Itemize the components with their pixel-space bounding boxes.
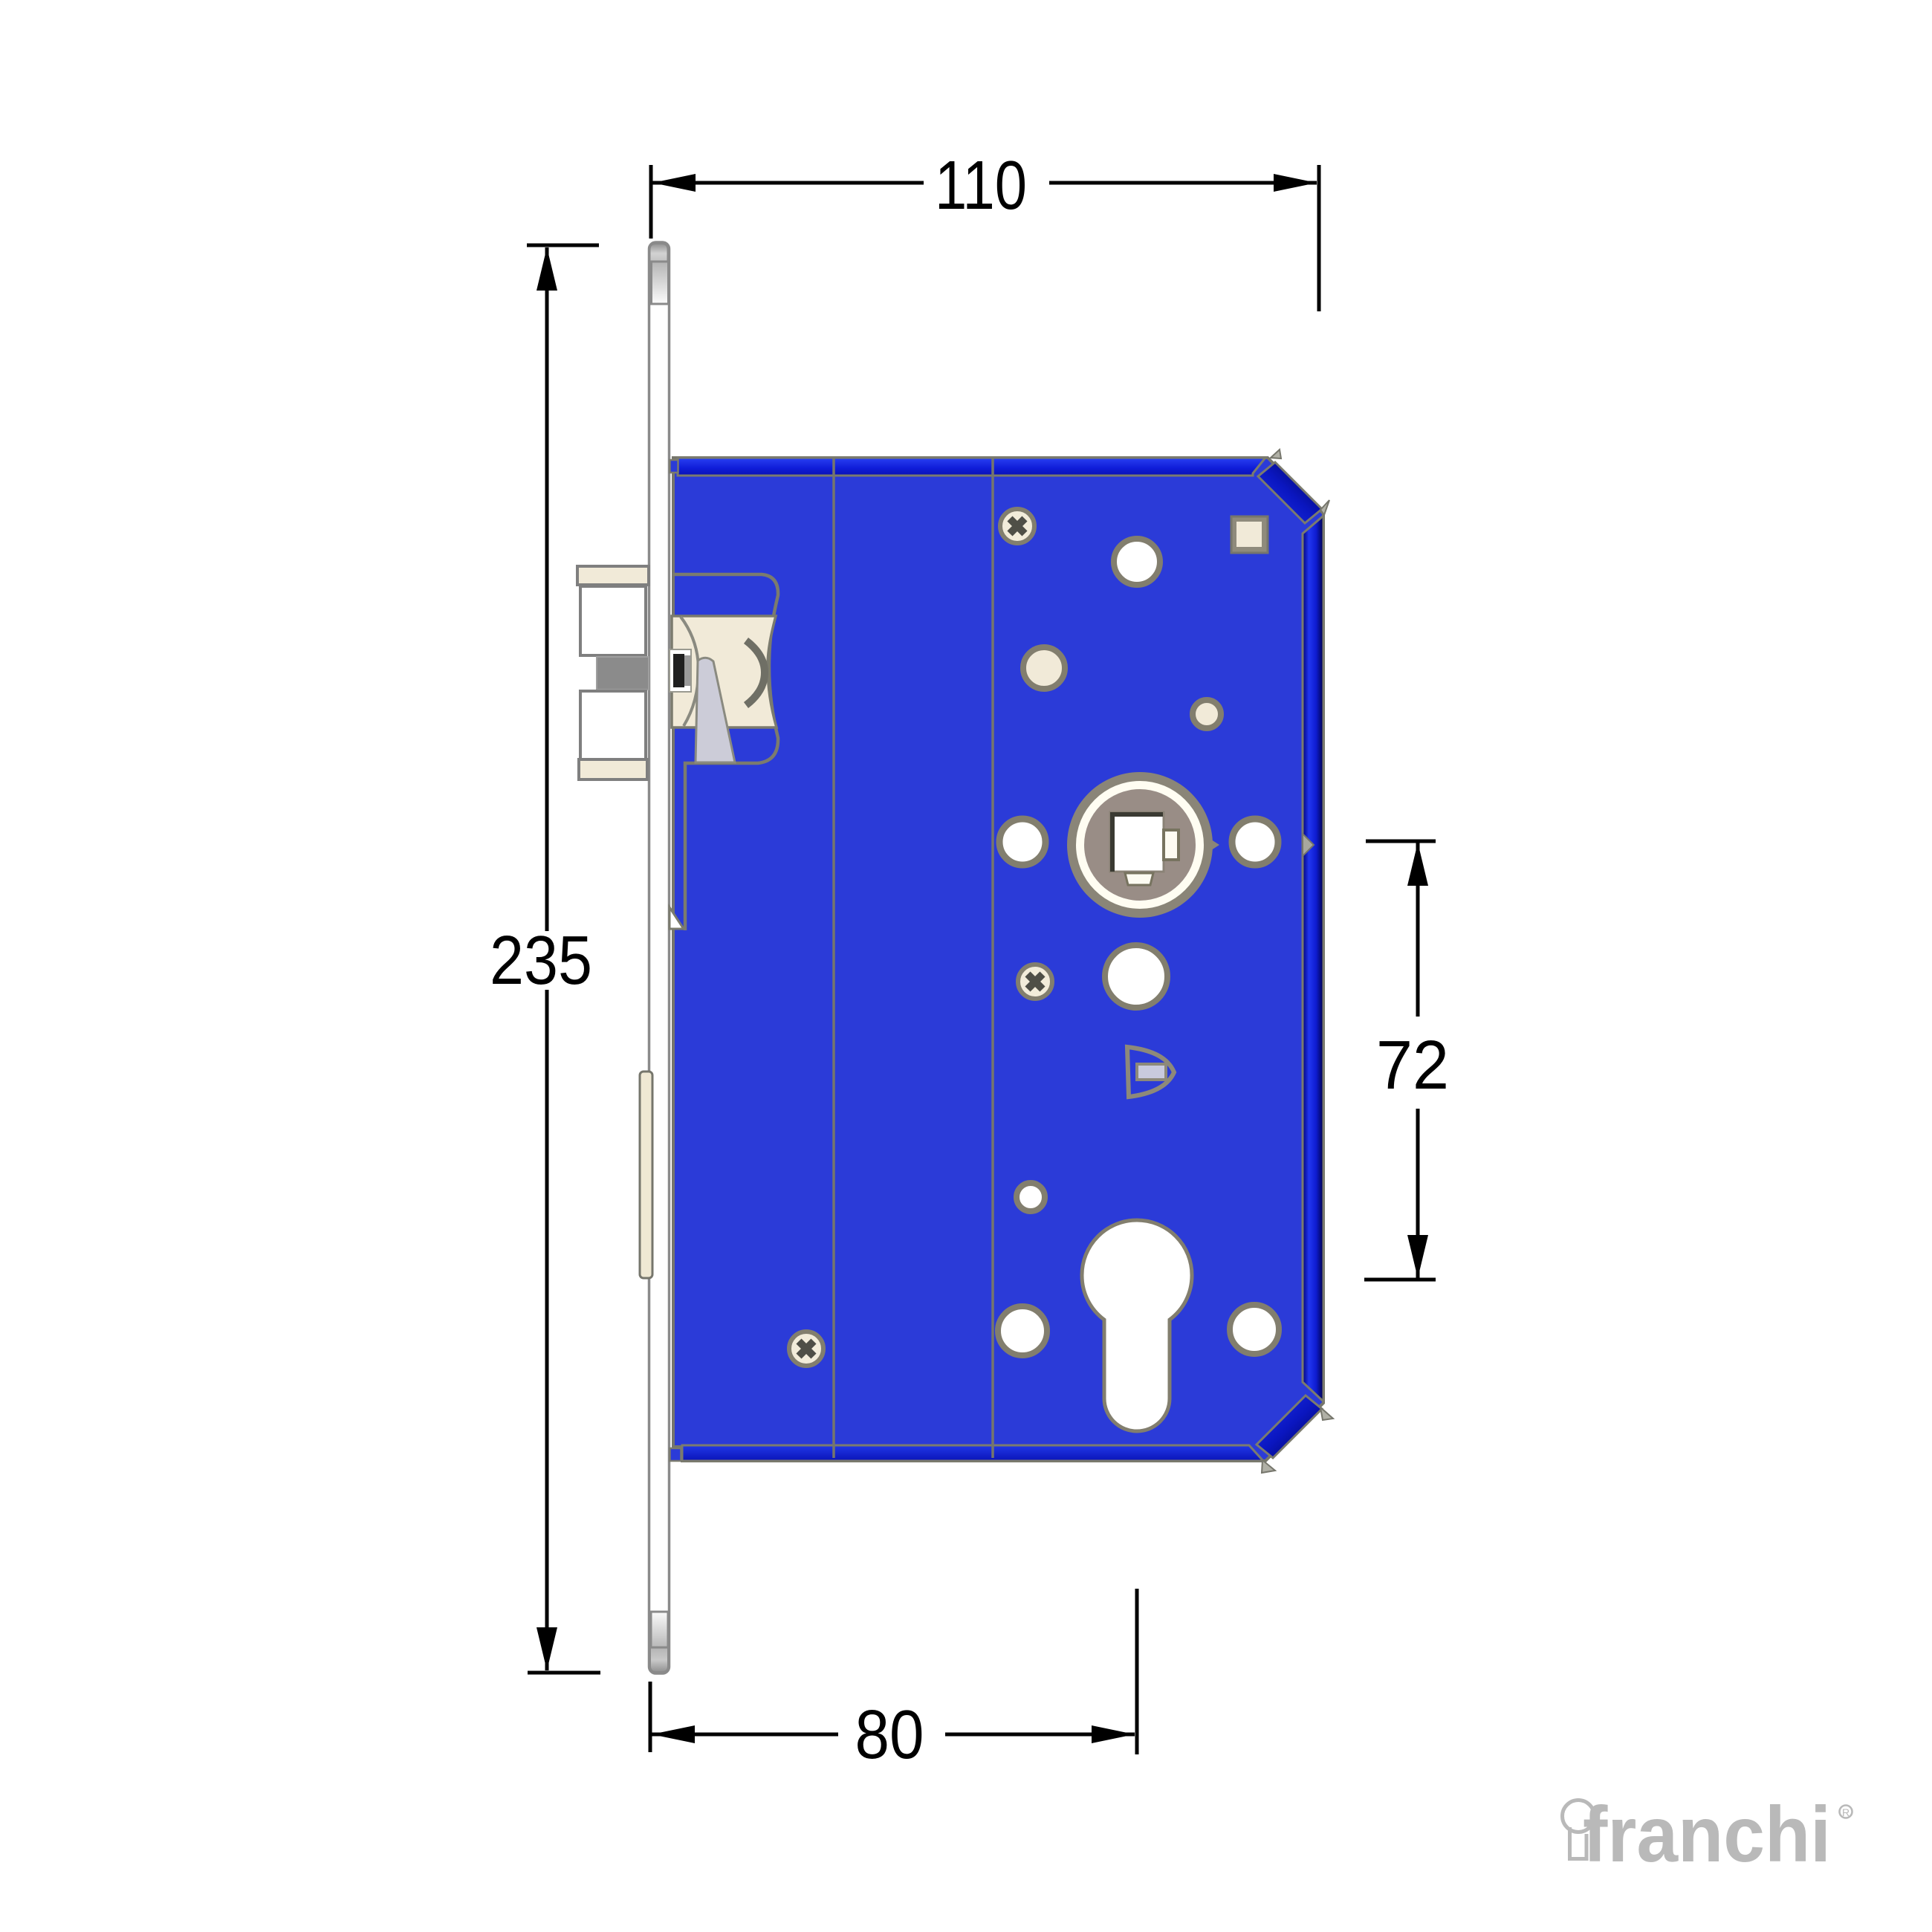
- svg-text:110: 110: [935, 146, 1027, 224]
- svg-text:R: R: [1842, 1806, 1850, 1818]
- svg-text:235: 235: [490, 921, 592, 999]
- svg-text:72: 72: [1376, 1026, 1449, 1103]
- svg-text:80: 80: [855, 1696, 924, 1773]
- svg-text:franchi: franchi: [1583, 1791, 1831, 1878]
